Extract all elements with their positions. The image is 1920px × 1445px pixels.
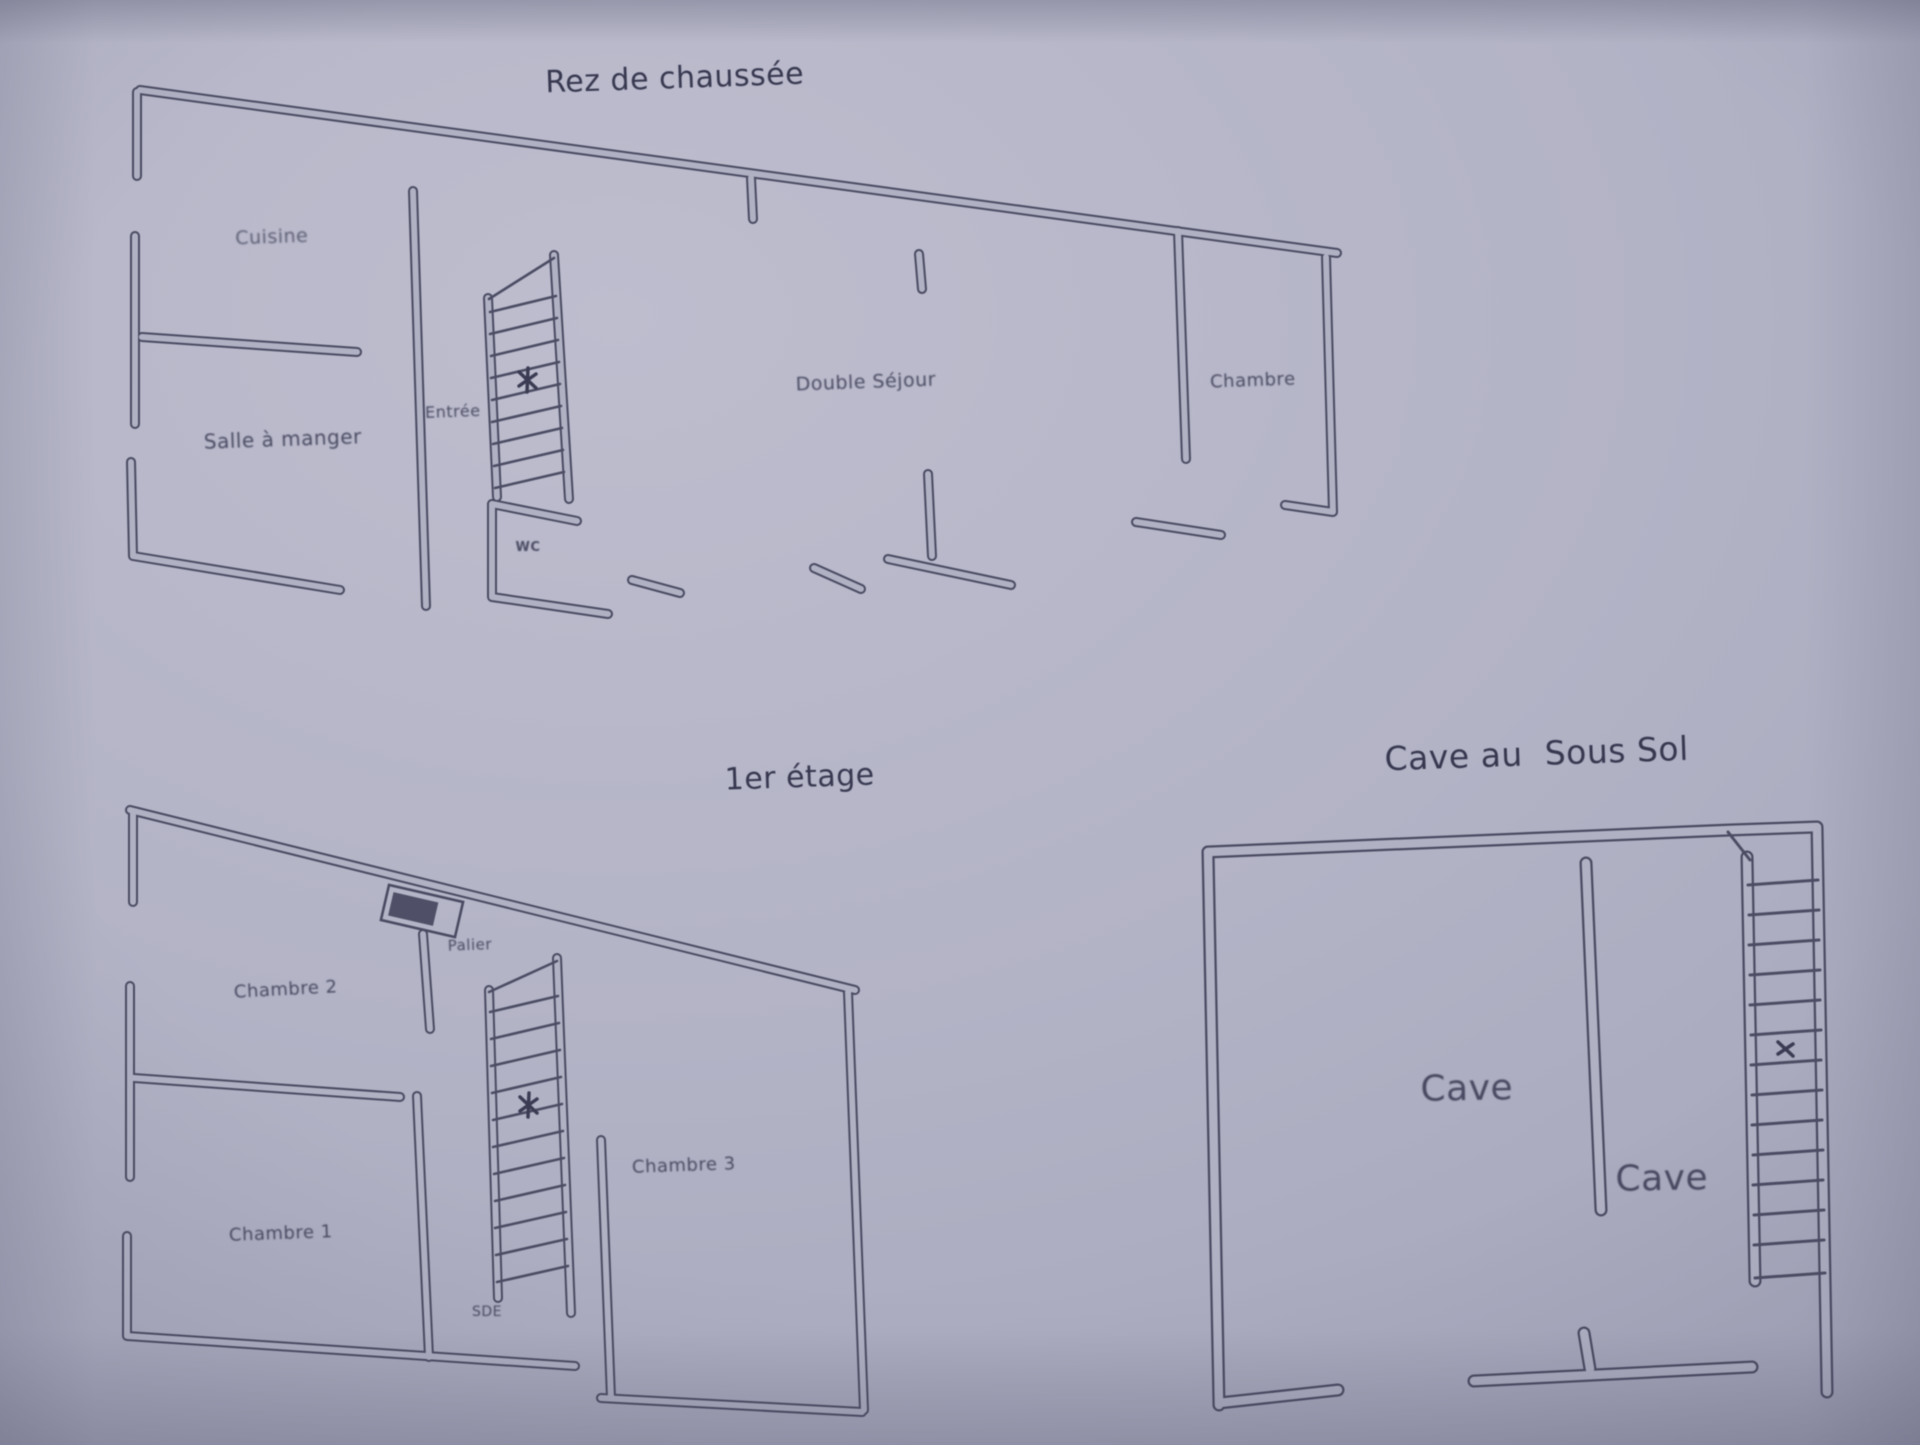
room-label-cave-1: Cave	[1420, 1067, 1513, 1110]
plan-title-1er-etage: 1er étage	[724, 757, 875, 797]
plan-title-sous-sol: Cave au Sous Sol	[1384, 729, 1689, 779]
room-label-cuisine: Cuisine	[235, 225, 309, 250]
room-label-entree: Entrée	[425, 401, 481, 422]
room-label-double-sejour: Double Séjour	[795, 369, 936, 396]
room-label-chambre-rdc: Chambre	[1210, 369, 1296, 393]
room-label-chambre-2: Chambre 2	[233, 976, 338, 1002]
room-label-cave-2: Cave	[1615, 1157, 1708, 1200]
plan-premier-etage: 1er étage	[127, 757, 875, 1412]
room-label-sde: SDE	[472, 1304, 502, 1320]
room-label-chambre-3: Chambre 3	[632, 1153, 736, 1178]
floor-plan-photo: Rez de chaussée	[0, 0, 1920, 1445]
room-label-wc: WC	[516, 540, 541, 555]
etage-left-bottom-wall	[127, 1236, 575, 1366]
cave-walls	[1208, 827, 1827, 1405]
room-label-chambre-1: Chambre 1	[229, 1221, 333, 1246]
plan-cave-au-sous-sol: Cave au Sous Sol	[1208, 729, 1827, 1405]
room-label-salle-a-manger: Salle à manger	[203, 424, 362, 454]
room-label-palier: Palier	[447, 935, 492, 955]
plan-rez-de-chaussee: Rez de chaussée	[131, 56, 1337, 614]
plan-title-rdc: Rez de chaussée	[545, 56, 805, 100]
cave-stair-direction-mark	[1778, 1042, 1793, 1056]
